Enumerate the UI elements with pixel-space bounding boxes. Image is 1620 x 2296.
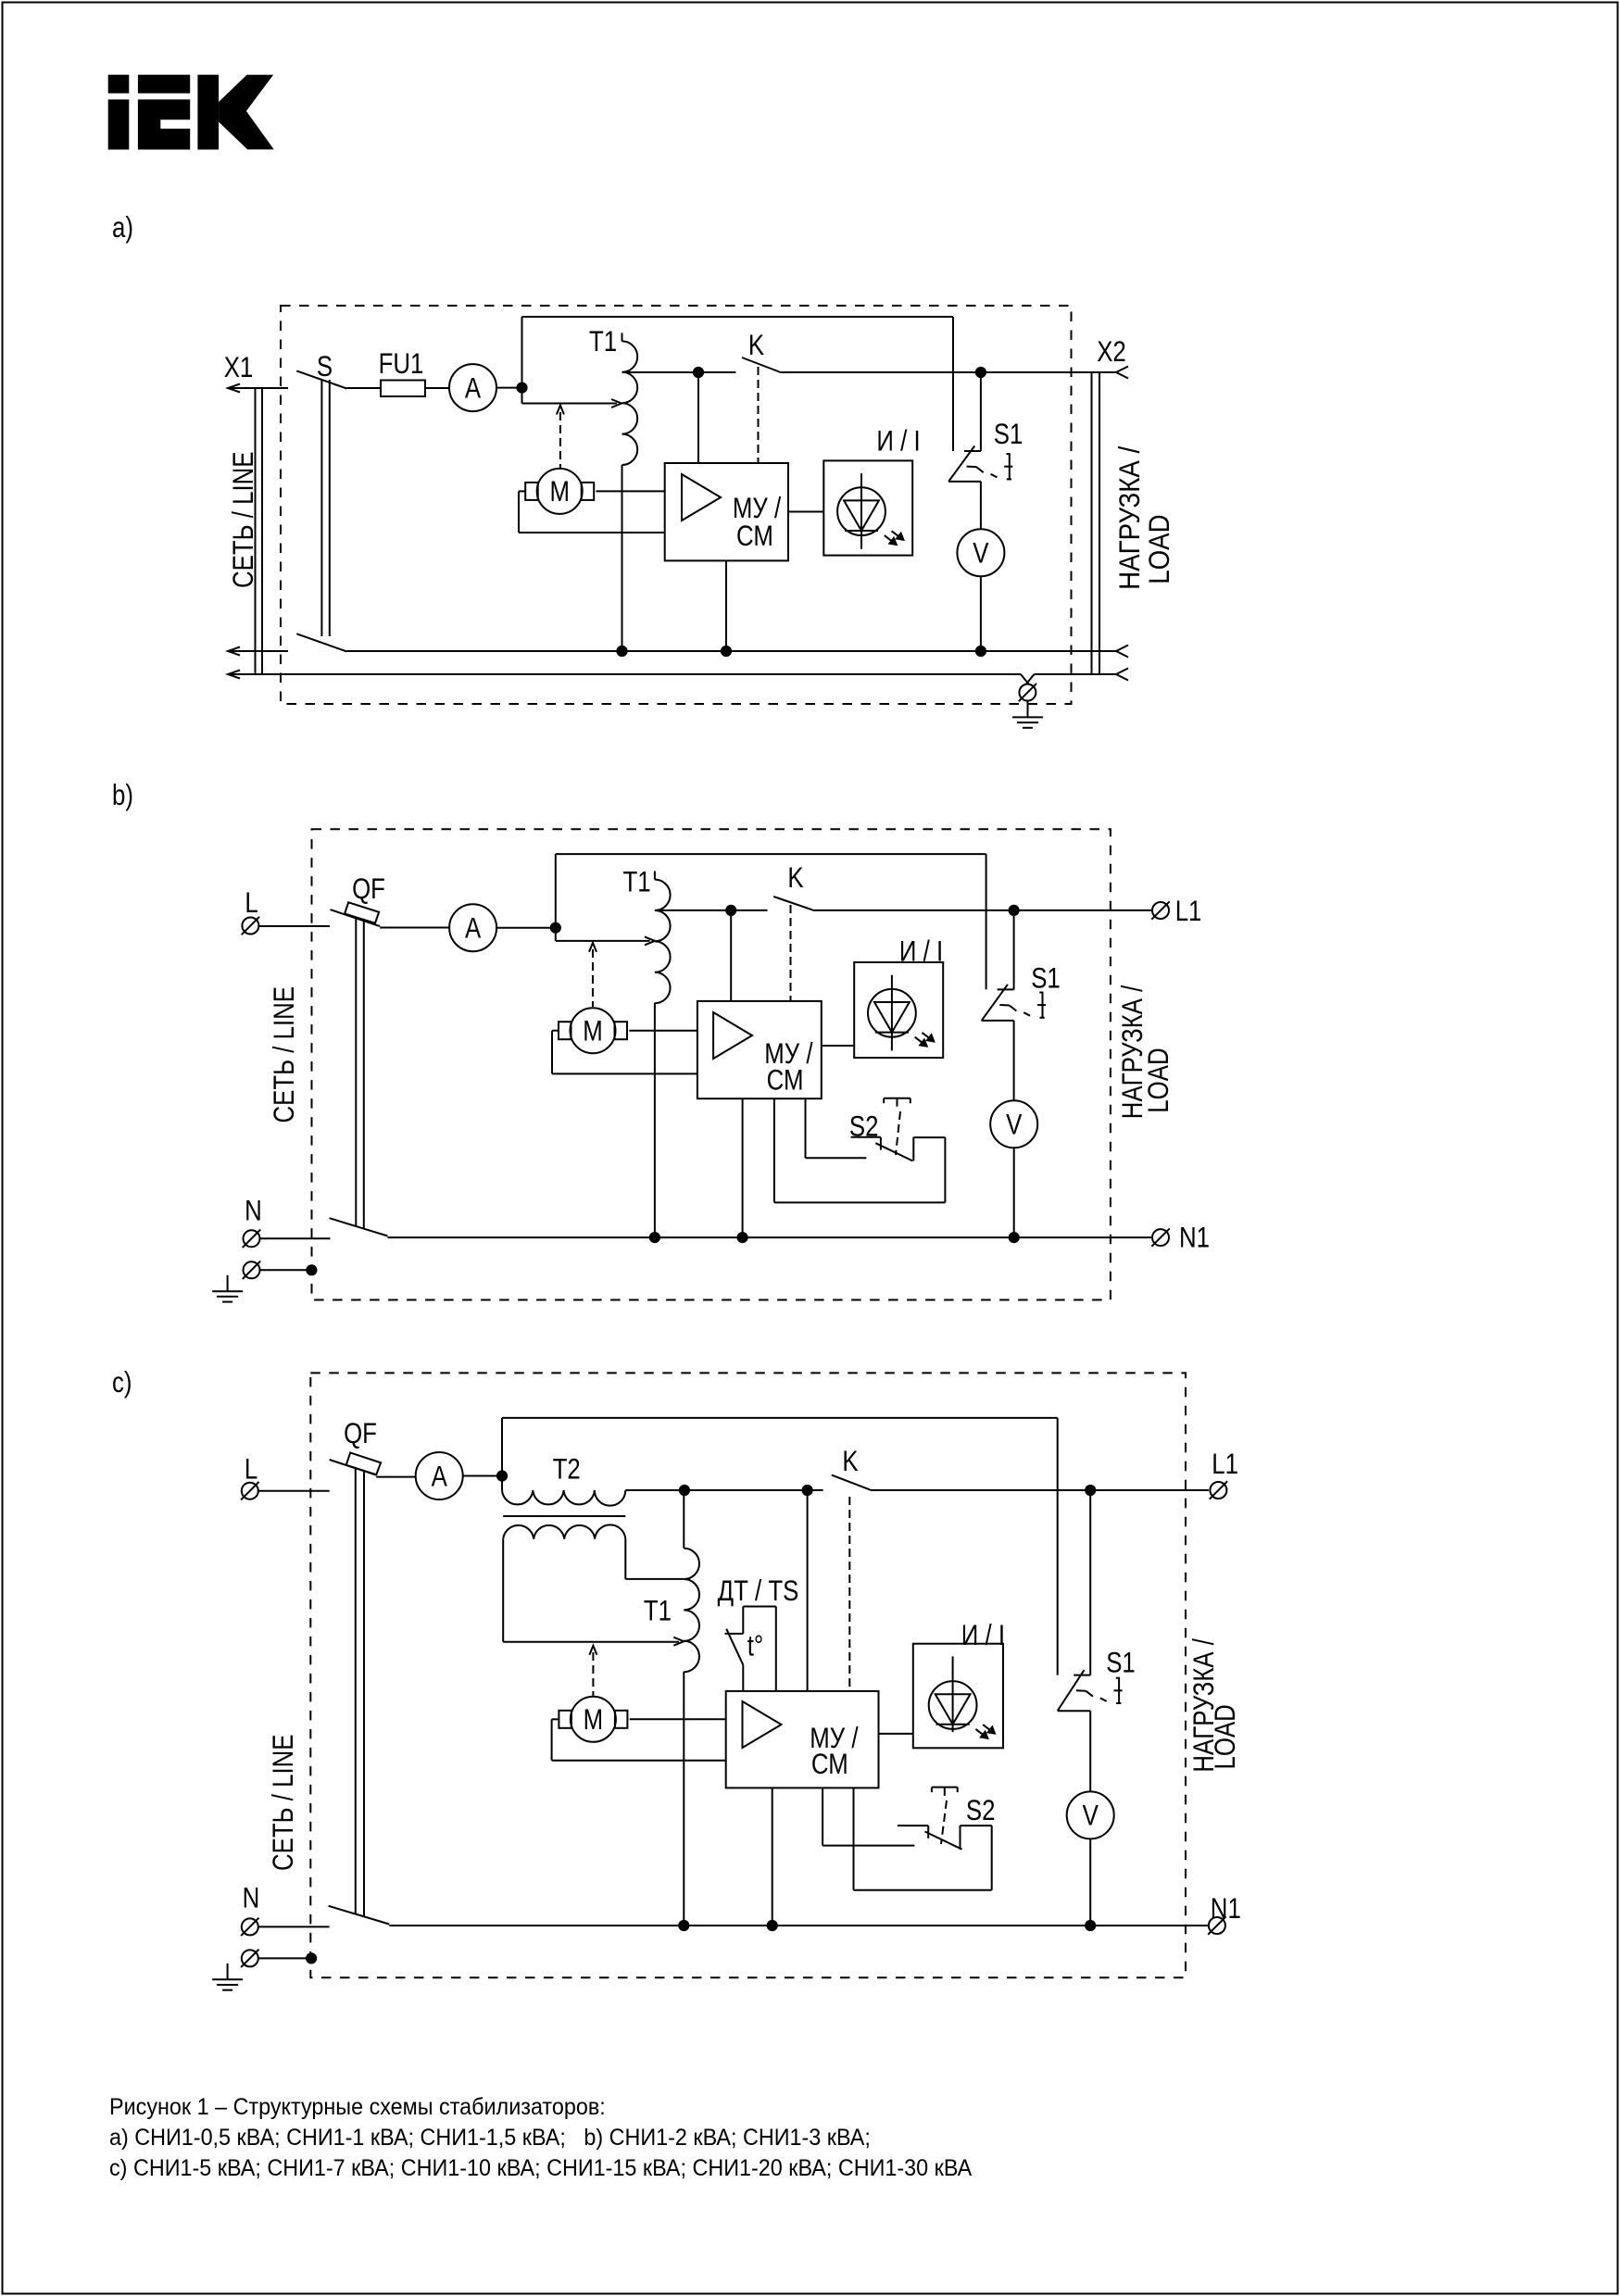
- svg-text:V: V: [1083, 1800, 1099, 1832]
- svg-text:LOAD: LOAD: [1143, 514, 1175, 583]
- svg-text:t°: t°: [747, 1630, 764, 1662]
- svg-text:S2: S2: [849, 1110, 879, 1143]
- svg-text:S1: S1: [1031, 962, 1061, 995]
- svg-text:L: L: [245, 1453, 257, 1486]
- svg-text:НАГРУЗКА /: НАГРУЗКА /: [1114, 445, 1147, 590]
- svg-text:LOAD: LOAD: [1210, 1704, 1242, 1769]
- svg-text:LOAD: LOAD: [1143, 1048, 1175, 1112]
- svg-text:СЕТЬ / LINE: СЕТЬ / LINE: [228, 451, 260, 588]
- svg-text:M: M: [584, 1704, 604, 1737]
- svg-text:a): a): [112, 212, 133, 245]
- svg-text:M: M: [549, 476, 570, 508]
- svg-text:СЕТЬ / LINE: СЕТЬ / LINE: [269, 986, 301, 1123]
- svg-text:N1: N1: [1179, 1222, 1210, 1254]
- svg-text:L: L: [245, 887, 257, 920]
- svg-text:c) СНИ1-5 кВА; СНИ1-7 кВА; СНИ: c) СНИ1-5 кВА; СНИ1-7 кВА; СНИ1-10 кВА; …: [109, 2155, 973, 2181]
- svg-text:L1: L1: [1175, 896, 1202, 928]
- svg-text:S1: S1: [1106, 1647, 1136, 1679]
- svg-text:M: M: [583, 1015, 603, 1048]
- svg-text:ДТ / TS: ДТ / TS: [718, 1575, 799, 1608]
- svg-text:QF: QF: [352, 873, 385, 906]
- svg-text:СМ: СМ: [736, 521, 773, 553]
- svg-text:Рисунок 1 – Структурные схемы: Рисунок 1 – Структурные схемы стабилизат…: [109, 2094, 606, 2120]
- svg-text:V: V: [973, 537, 989, 570]
- svg-text:СМ: СМ: [811, 1748, 848, 1780]
- svg-text:K: K: [842, 1446, 858, 1478]
- svg-text:N1: N1: [1211, 1893, 1241, 1926]
- svg-text:S2: S2: [966, 1794, 996, 1826]
- svg-text:c): c): [112, 1367, 132, 1399]
- svg-text:T2: T2: [553, 1453, 581, 1486]
- svg-text:И / I: И / I: [876, 425, 920, 458]
- svg-text:K: K: [787, 862, 803, 895]
- svg-text:СЕТЬ / LINE: СЕТЬ / LINE: [268, 1734, 300, 1871]
- svg-text:K: K: [748, 330, 764, 362]
- svg-text:X2: X2: [1097, 336, 1126, 369]
- svg-text:S1: S1: [994, 419, 1023, 451]
- svg-text:N: N: [243, 1882, 260, 1914]
- svg-text:FU1: FU1: [379, 348, 424, 381]
- svg-text:A: A: [465, 912, 482, 945]
- svg-text:QF: QF: [344, 1418, 377, 1450]
- svg-text:A: A: [465, 372, 482, 405]
- svg-text:И / I: И / I: [899, 935, 943, 968]
- svg-text:b): b): [112, 780, 133, 812]
- svg-text:T1: T1: [644, 1595, 672, 1627]
- svg-text:T1: T1: [589, 326, 617, 358]
- svg-text:a) СНИ1-0,5 кВА; СНИ1-1 кВА; С: a) СНИ1-0,5 кВА; СНИ1-1 кВА; СНИ1-1,5 кВ…: [109, 2125, 871, 2151]
- svg-text:N: N: [245, 1195, 262, 1227]
- svg-text:A: A: [432, 1461, 448, 1493]
- svg-text:L1: L1: [1212, 1449, 1238, 1481]
- svg-text:СМ: СМ: [767, 1064, 804, 1097]
- svg-text:T1: T1: [622, 866, 650, 898]
- svg-text:V: V: [1006, 1109, 1023, 1141]
- svg-text:И / I: И / I: [961, 1620, 1005, 1652]
- svg-text:X1: X1: [224, 352, 254, 384]
